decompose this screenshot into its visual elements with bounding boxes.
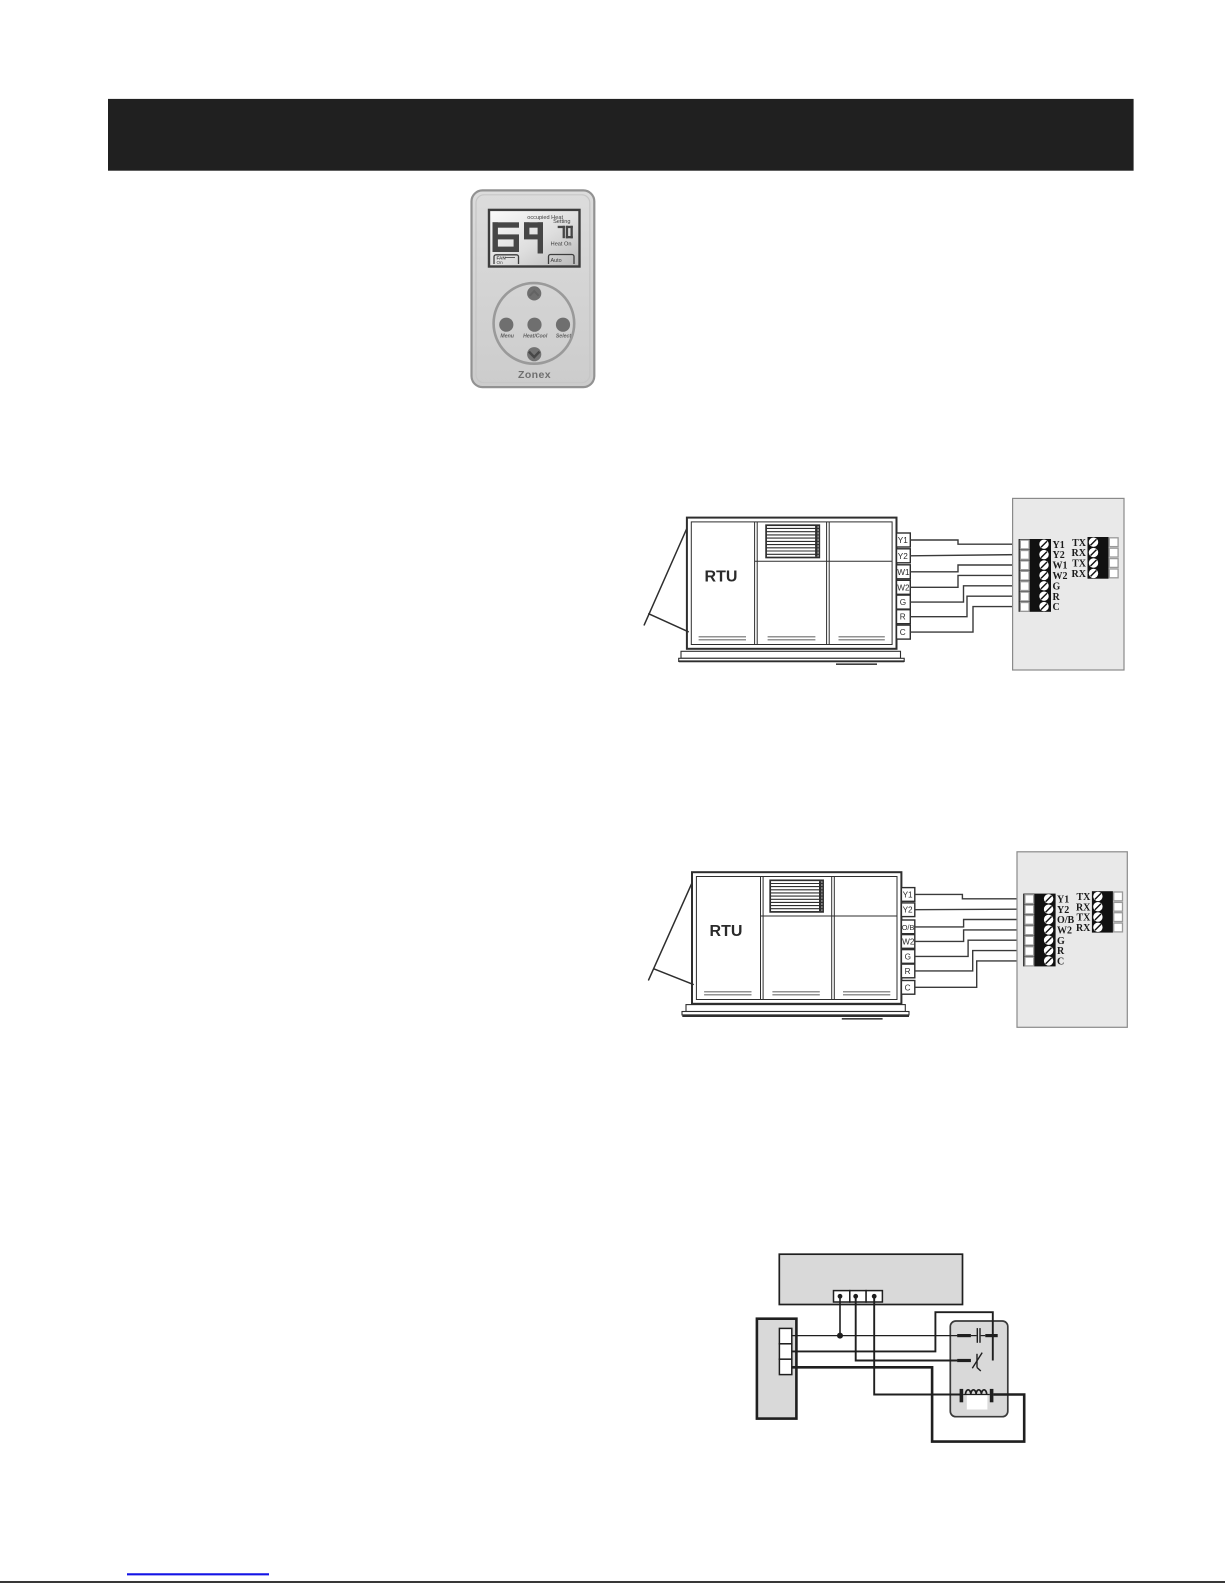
svg-text:G: G: [1057, 936, 1065, 947]
svg-text:Y1: Y1: [903, 890, 913, 899]
svg-text:C: C: [1057, 957, 1064, 968]
svg-text:TX: TX: [1076, 913, 1091, 924]
svg-text:O/B: O/B: [1057, 915, 1075, 926]
svg-text:G: G: [900, 598, 906, 607]
svg-text:Y1: Y1: [1053, 540, 1065, 551]
svg-text:Y2: Y2: [898, 552, 908, 561]
svg-text:C: C: [900, 628, 906, 637]
svg-text:TX: TX: [1072, 559, 1087, 570]
svg-text:Y2: Y2: [1053, 550, 1065, 561]
svg-text:W1: W1: [897, 568, 910, 577]
svg-text:W2: W2: [1053, 571, 1068, 582]
svg-text:Setting: Setting: [553, 219, 570, 225]
svg-text:O/B: O/B: [902, 923, 915, 932]
svg-text:RTU: RTU: [705, 569, 738, 586]
svg-text:Zonex: Zonex: [518, 369, 551, 381]
svg-text:W2: W2: [897, 583, 910, 592]
svg-text:Menu: Menu: [500, 334, 514, 340]
svg-text:W1: W1: [1053, 561, 1068, 572]
svg-text:Y2: Y2: [903, 906, 913, 915]
svg-text:Heat On: Heat On: [551, 242, 572, 248]
svg-text:On: On: [497, 260, 504, 265]
svg-text:Auto: Auto: [551, 258, 562, 264]
svg-text:Select: Select: [556, 334, 572, 340]
svg-text:W2: W2: [902, 937, 915, 946]
svg-text:RX: RX: [1072, 569, 1087, 580]
svg-text:C: C: [905, 983, 911, 992]
svg-text:Y1: Y1: [1057, 894, 1069, 905]
svg-text:G: G: [1053, 581, 1061, 592]
svg-text:RTU: RTU: [710, 923, 743, 940]
svg-text:R: R: [1053, 592, 1061, 603]
svg-text:Y1: Y1: [898, 536, 908, 545]
svg-text:G: G: [905, 952, 911, 961]
svg-text:RX: RX: [1076, 923, 1091, 934]
svg-text:TX: TX: [1072, 538, 1087, 549]
svg-text:R: R: [900, 613, 906, 622]
svg-text:C: C: [1053, 602, 1060, 613]
svg-text:Heat/Cool: Heat/Cool: [523, 334, 548, 340]
svg-text:RX: RX: [1072, 548, 1087, 559]
svg-text:R: R: [905, 967, 911, 976]
